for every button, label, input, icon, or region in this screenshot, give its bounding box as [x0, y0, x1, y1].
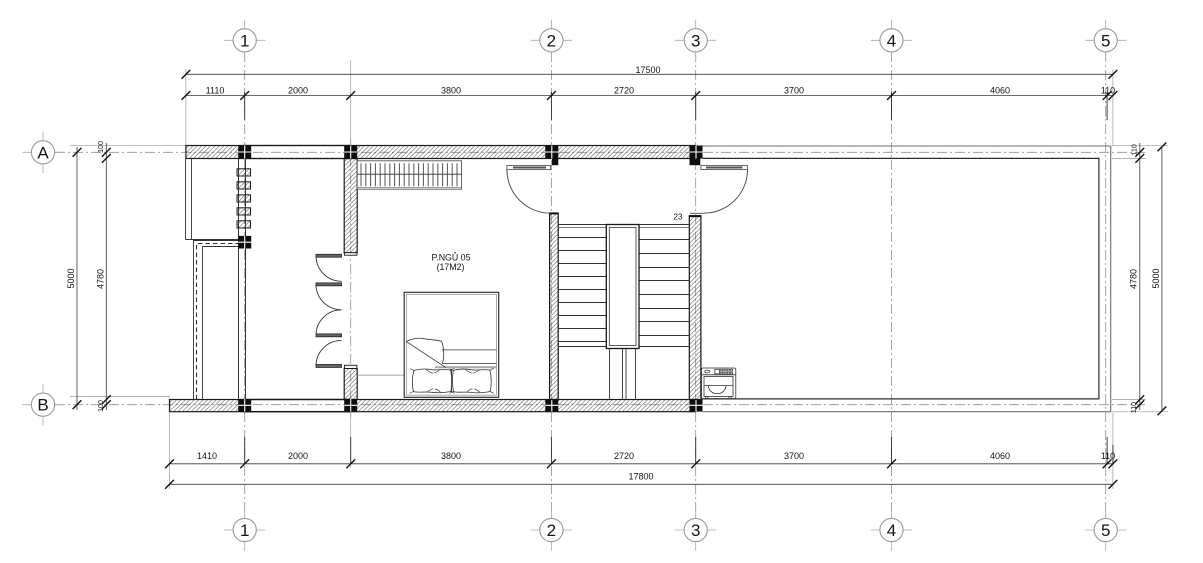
- svg-text:A: A: [37, 143, 49, 162]
- svg-text:4: 4: [887, 521, 896, 540]
- svg-text:3800: 3800: [441, 86, 461, 96]
- svg-text:3700: 3700: [784, 451, 804, 461]
- svg-text:1410: 1410: [197, 451, 217, 461]
- svg-text:4060: 4060: [990, 451, 1010, 461]
- svg-text:4: 4: [887, 31, 896, 50]
- svg-text:3: 3: [691, 31, 700, 50]
- svg-text:2000: 2000: [288, 451, 308, 461]
- svg-text:23: 23: [674, 212, 683, 221]
- svg-text:2: 2: [547, 31, 556, 50]
- svg-text:5: 5: [1101, 31, 1110, 50]
- svg-text:4780: 4780: [95, 269, 105, 289]
- svg-text:1110: 1110: [206, 86, 225, 96]
- svg-text:5000: 5000: [66, 268, 76, 288]
- svg-text:4780: 4780: [1129, 269, 1139, 289]
- svg-text:3: 3: [691, 521, 700, 540]
- svg-text:1: 1: [240, 521, 249, 540]
- svg-text:5000: 5000: [1151, 268, 1161, 288]
- svg-text:5: 5: [1101, 521, 1110, 540]
- svg-text:17500: 17500: [635, 65, 660, 75]
- svg-text:(17M2): (17M2): [437, 262, 465, 272]
- svg-text:110: 110: [1101, 86, 1115, 96]
- svg-text:17800: 17800: [628, 472, 653, 482]
- svg-text:3800: 3800: [441, 451, 461, 461]
- svg-text:100: 100: [98, 141, 105, 153]
- svg-text:110: 110: [1101, 451, 1115, 461]
- svg-text:2720: 2720: [614, 451, 634, 461]
- svg-text:2000: 2000: [288, 86, 308, 96]
- svg-text:1: 1: [240, 31, 249, 50]
- svg-text:3700: 3700: [784, 86, 804, 96]
- svg-text:2720: 2720: [614, 86, 634, 96]
- svg-text:2: 2: [547, 521, 556, 540]
- svg-text:4060: 4060: [990, 86, 1010, 96]
- svg-text:B: B: [37, 396, 48, 415]
